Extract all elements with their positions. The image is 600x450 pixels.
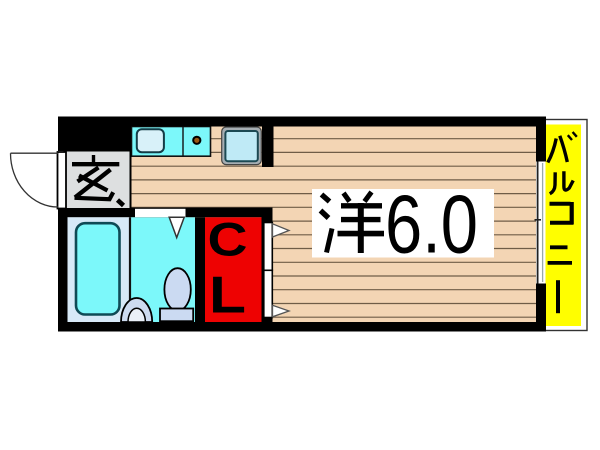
svg-text:L: L [209, 267, 246, 325]
svg-text:6.0: 6.0 [385, 177, 478, 270]
svg-text:C: C [208, 213, 248, 266]
